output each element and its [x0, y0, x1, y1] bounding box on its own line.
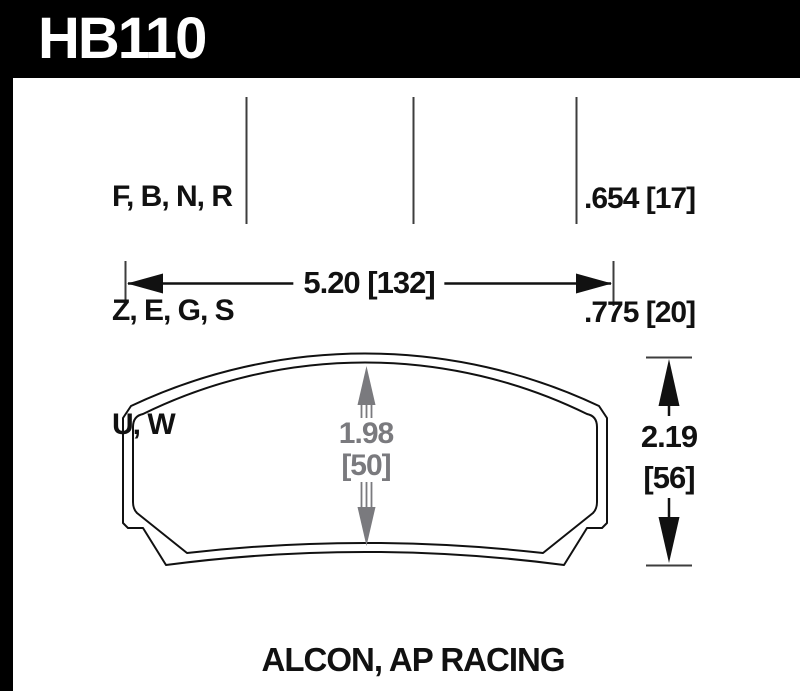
pad-thickness-row: .775 [20] [584, 294, 695, 332]
center-dimension-label: 1.98 [50] [333, 418, 399, 482]
applications-text: ALCON, AP RACING [261, 641, 564, 679]
center-dim-up-arrow [358, 366, 376, 405]
center-dimension-inches: 1.98 [339, 418, 393, 450]
pad-thickness-row: .654 [17] [584, 180, 695, 218]
spec-table-rules [247, 97, 577, 224]
compound-codes-row: F, B, N, R [112, 178, 234, 216]
center-dim-down-arrow [358, 507, 376, 546]
compound-codes-row: Z, E, G, S [112, 292, 234, 330]
height-dim-down-arrow [659, 517, 680, 563]
width-dimension-label: 5.20 [132] [293, 265, 444, 301]
pad-thickness-column: .654 [17] .775 [20] [584, 104, 695, 370]
height-dimension-mm: [56] [641, 457, 697, 498]
height-dimension-label: 2.19 [56] [635, 416, 703, 498]
compound-codes-row: U, W [112, 406, 234, 444]
compound-codes-column: F, B, N, R Z, E, G, S U, W [112, 102, 234, 482]
height-dimension-inches: 2.19 [641, 416, 697, 457]
center-dimension-mm: [50] [339, 450, 393, 482]
